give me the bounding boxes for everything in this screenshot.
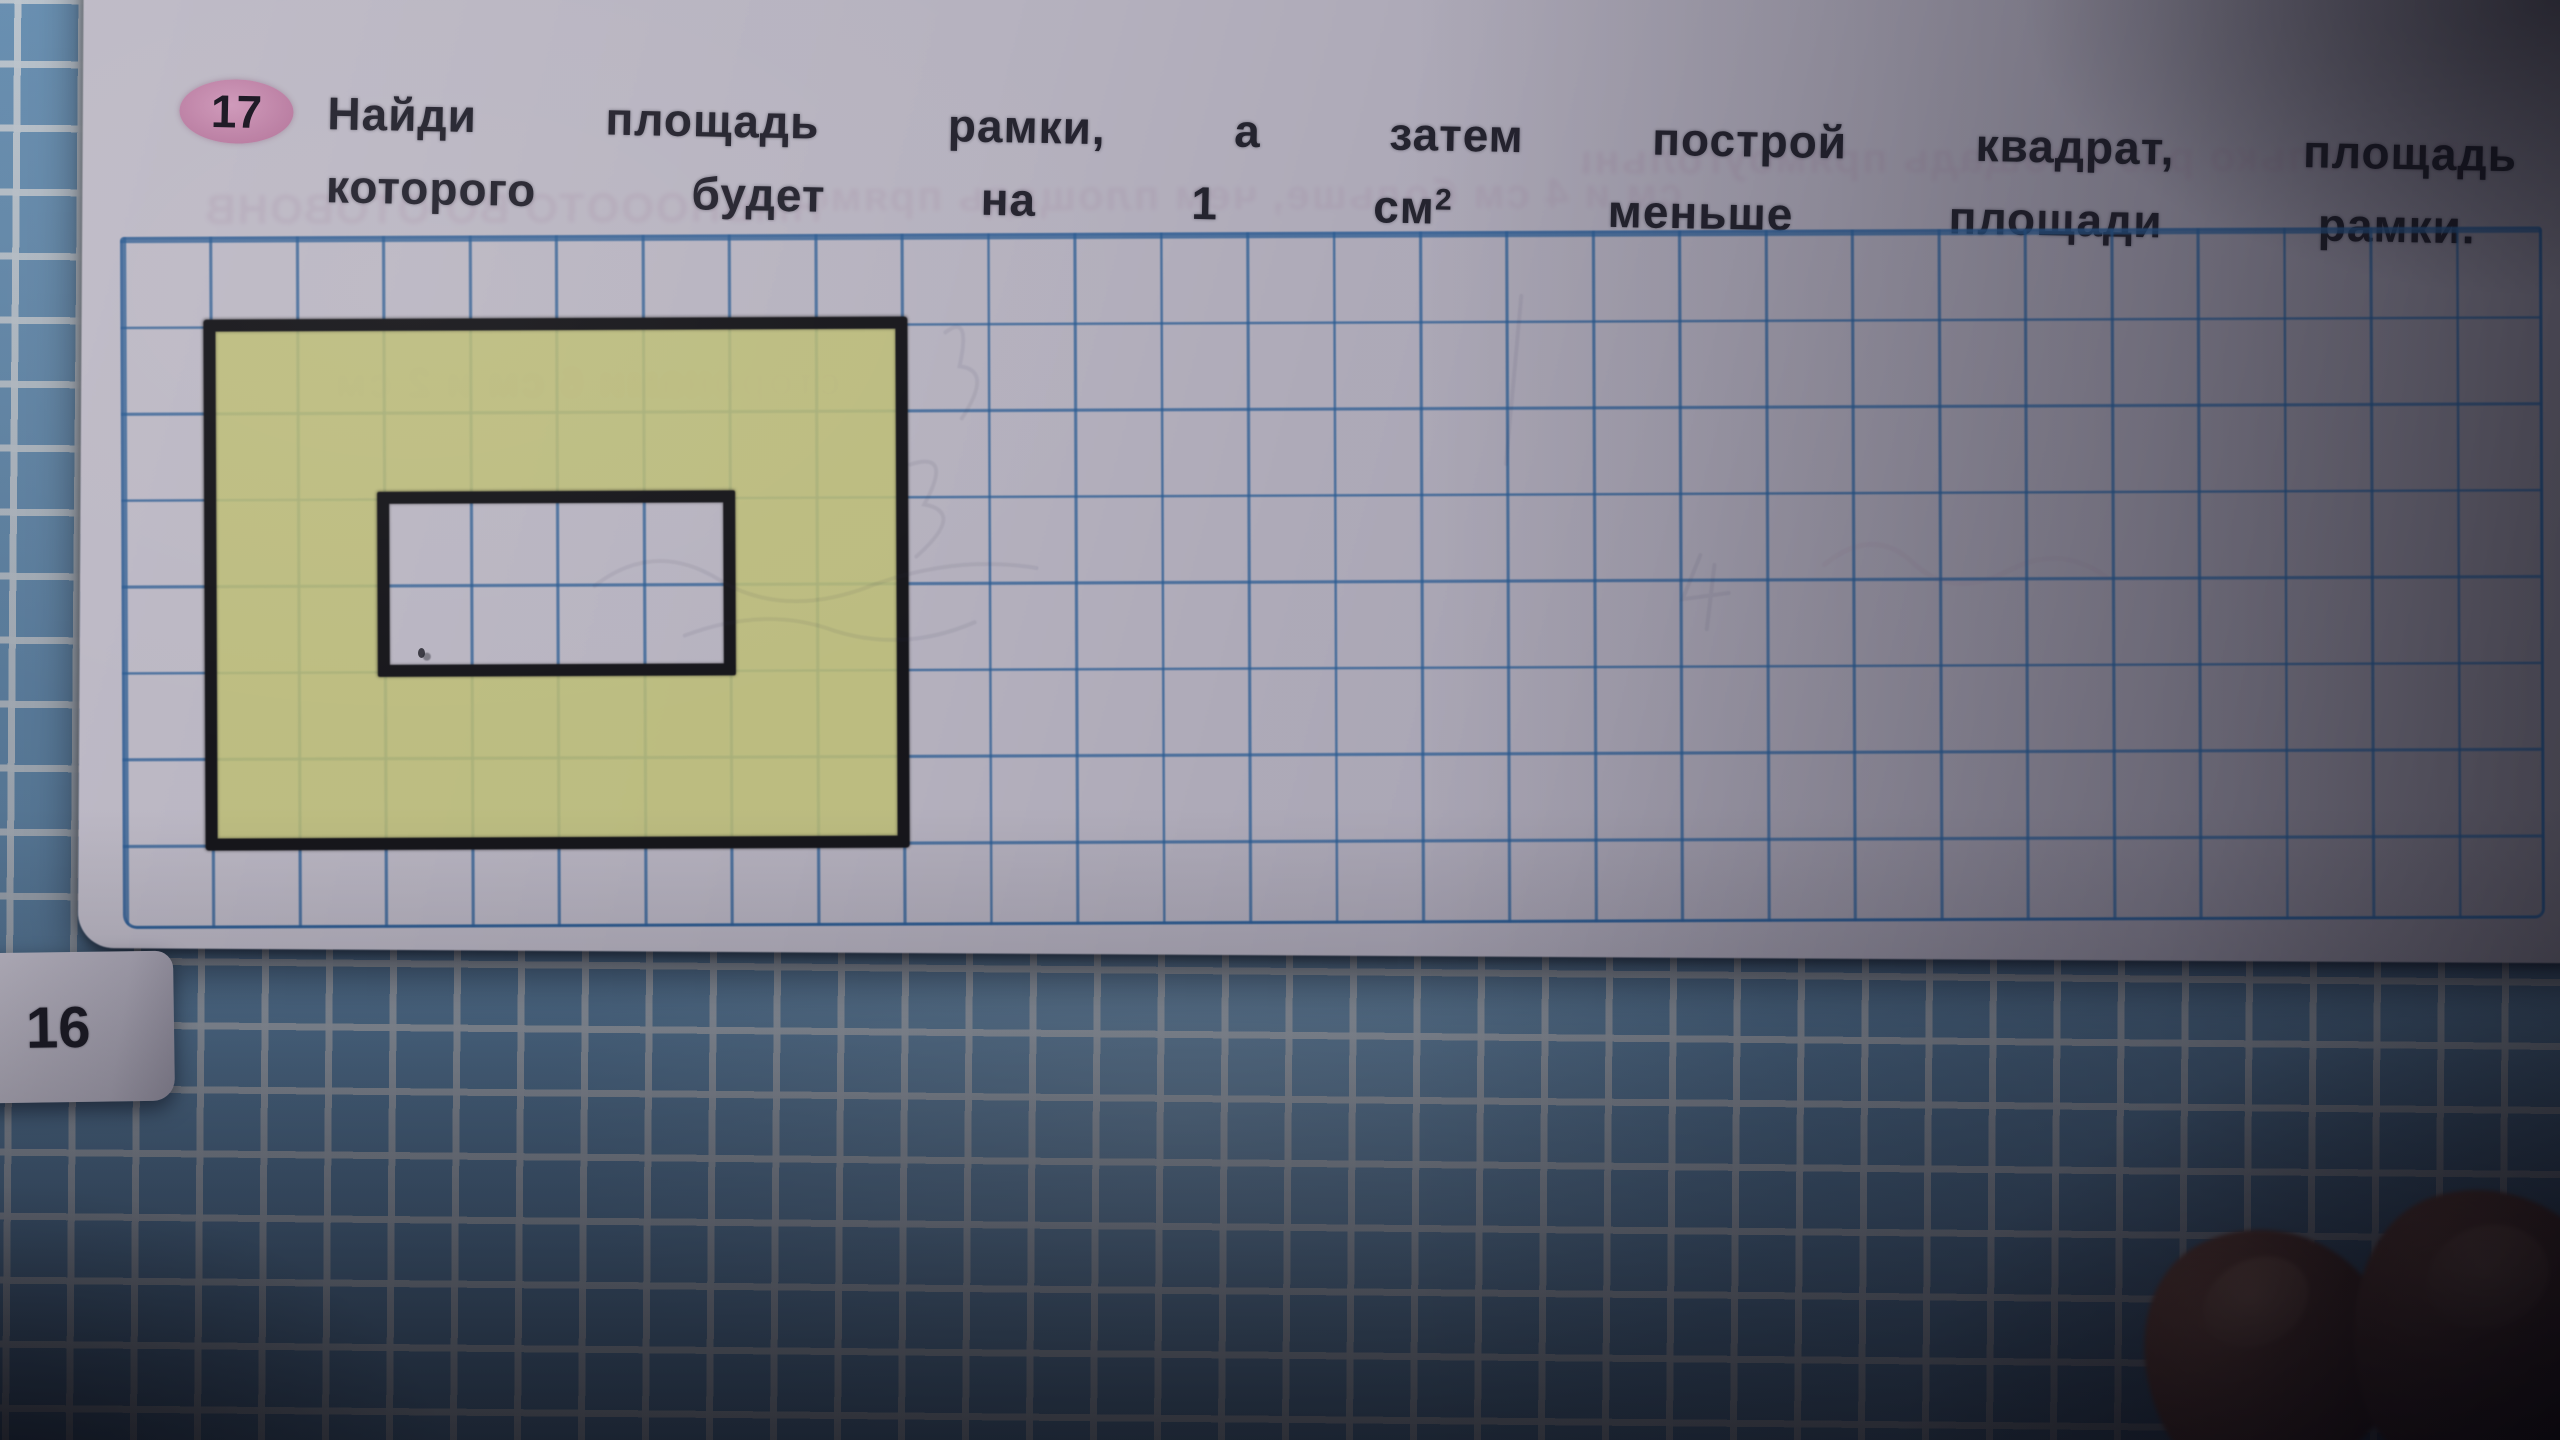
task-text-squared-sup: 2 bbox=[1435, 184, 1453, 217]
fingernail bbox=[2414, 1209, 2560, 1344]
task-number: 17 bbox=[210, 84, 262, 139]
fingernail bbox=[2187, 1239, 2324, 1366]
ink-speck bbox=[418, 648, 425, 658]
frame-outer-border bbox=[204, 317, 909, 850]
grid-paper bbox=[120, 226, 2545, 929]
photo-of-textbook-page: Во сколько раз площадь прямоугольника со… bbox=[0, 0, 2560, 1440]
fingers bbox=[2080, 1156, 2560, 1440]
frame-figure bbox=[210, 323, 903, 844]
page-number-strip: 16 bbox=[0, 951, 175, 1104]
page-number: 16 bbox=[0, 993, 91, 1062]
